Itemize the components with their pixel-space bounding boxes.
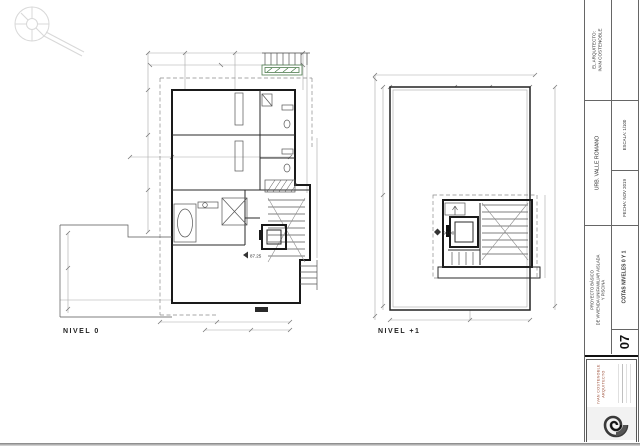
scale-label: ESCALA: 1/100: [622, 120, 628, 151]
logo-subtitle: ARQUITECTO: [602, 364, 607, 404]
planter: [262, 65, 302, 75]
location-label: URB. VALLE ROMANO: [594, 135, 601, 189]
scale-cell: ESCALA: 1/100: [612, 100, 638, 171]
project-line-3: Y PISCINA: [601, 254, 607, 325]
svg-text:90.90: 90.90: [443, 231, 455, 236]
sheet-title: COTAS NIVELES 0 Y 1: [622, 251, 629, 304]
logo-name: IVAN COSTENOBLE: [596, 364, 601, 404]
level-marker-nivel-0: 87.25: [243, 252, 262, 259]
elevator: [259, 225, 286, 249]
terrace-outline: [60, 225, 172, 317]
date-label: FECHA: NOV 2019: [622, 179, 628, 217]
sheet-title-cell: COTAS NIVELES 0 Y 1: [612, 225, 638, 330]
sheet-number-cell: 07: [612, 330, 638, 354]
floor-plan-nivel-0: 87.25: [55, 8, 355, 340]
exterior-walls: [172, 90, 310, 303]
project-cell: PROYECTO BÁSICO DE VIVIENDA UNIFAMILIAR …: [585, 225, 612, 354]
svg-text:87.25: 87.25: [250, 254, 262, 259]
roof-overhang-outline: [160, 78, 312, 315]
level-marker-nivel-1: 90.90: [434, 229, 455, 236]
exterior-steps: [300, 260, 317, 290]
location-cell: URB. VALLE ROMANO: [585, 100, 612, 226]
title-block: EL ARQUITECTO: IVAN COSTENOBLE URB. VALL…: [584, 0, 639, 443]
plan-label-nivel-1: NIVEL +1: [378, 328, 420, 335]
logo-box: IVAN COSTENOBLE ARQUITECTO: [586, 359, 637, 443]
title-block-divider: [585, 355, 638, 357]
sheet-bottom-edge: [0, 442, 640, 446]
logo-fine-print: [618, 364, 631, 403]
bathtub: [178, 209, 193, 237]
nautilus-shell-logo: [587, 407, 636, 440]
dimension-lines: [60, 51, 317, 332]
signature-cell: [612, 0, 638, 101]
roof-slab: [390, 87, 530, 310]
floor-plan-nivel-1: 90.90: [370, 55, 565, 330]
plan-label-nivel-0: NIVEL 0: [63, 328, 100, 335]
logo-text-area: IVAN COSTENOBLE ARQUITECTO: [587, 360, 636, 408]
fixtures: [174, 93, 293, 242]
architect-name: IVAN COSTENOBLE: [598, 28, 604, 71]
date-cell: FECHA: NOV 2019: [612, 170, 638, 226]
drawing-sheet: { "plans": { "nivel0": { "label": "NIVEL…: [0, 0, 640, 446]
architect-cell: EL ARQUITECTO: IVAN COSTENOBLE: [585, 0, 612, 101]
sheet-number: 07: [616, 335, 634, 349]
threshold: [255, 307, 268, 312]
